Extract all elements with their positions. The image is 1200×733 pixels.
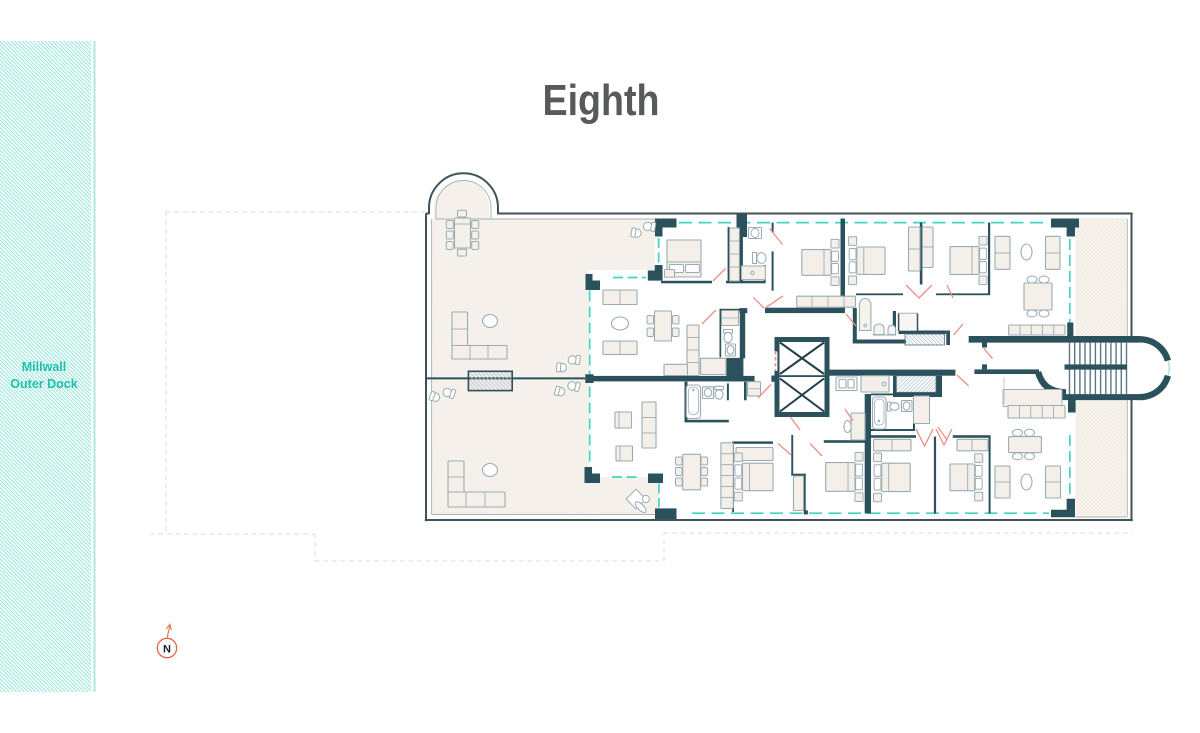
svg-text:Millwall: Millwall: [22, 360, 66, 374]
svg-text:Eighth: Eighth: [543, 76, 660, 125]
svg-text:N: N: [163, 644, 171, 656]
svg-text:Outer Dock: Outer Dock: [10, 377, 77, 391]
